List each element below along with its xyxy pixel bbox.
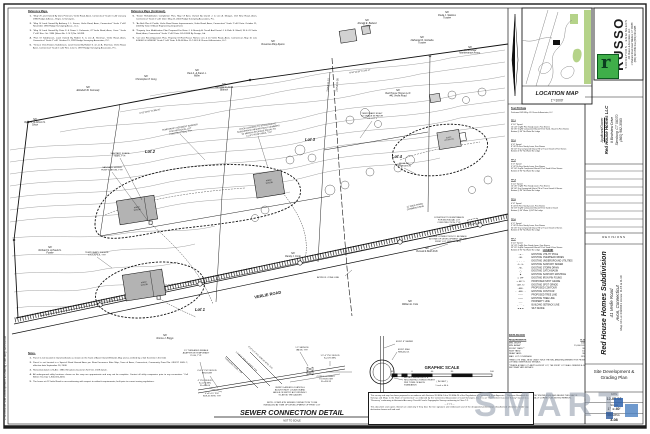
callout: TEMPORARY RIGHTTO GRADE IN FAVOROF LOT 3 — [361, 112, 383, 120]
sanitary-manhole — [398, 240, 402, 244]
scale-tick: 40 — [391, 371, 394, 373]
legend-item: - - - - EXISTING UNDERGROUND UTILITIES — [511, 260, 585, 262]
applicant-phone: (860) 982-3583 — [619, 98, 623, 162]
scale-tick: 160 — [490, 371, 494, 373]
valve-symbol — [307, 367, 313, 375]
detail-callout: 4" PVC SDR-35S=1.0% MIN.FL=455.00 — [198, 380, 214, 387]
legend-symbol: ~~~~ — [511, 297, 530, 299]
neighbor-label: N/FRonna J. Briggs — [156, 334, 174, 340]
reference-map-item: 6. "Sewer Rehabilitation Completion Plan… — [131, 15, 257, 21]
scale-tick: 40 — [431, 371, 434, 373]
note-item: 1. Parcel is not located in inland wetla… — [28, 357, 188, 360]
callout: ROOF LEADERS TO STOCKPILE TOSUBSURFACE I… — [236, 122, 281, 139]
margin-file-note: Z:\3-08\3-08 Site Development & Grading … — [3, 260, 7, 420]
detail-callout: 1.5" SERVICEVALVE, TYP. — [295, 347, 309, 351]
road-verlie — [12, 216, 508, 334]
site-marker — [553, 40, 560, 45]
sewer-detail-scale: NOT TO SCALE — [283, 420, 301, 423]
detail-callout: THREADED PLUG, TYP. — [224, 357, 243, 375]
neighbor-label: N/FRonald E. BedardTrustee — [358, 19, 378, 28]
legend-label: PROPOSED SPOT GRADE — [532, 280, 561, 282]
reference-maps-title: Reference Maps. — [28, 10, 126, 13]
neighbor-label: N/FRosanne Riley-Spano — [261, 40, 285, 46]
scale-units: ( IN FEET ) — [436, 381, 447, 383]
reference-maps-col2: Reference Maps (Continued). 6. "Sewer Re… — [131, 10, 257, 108]
testpit-entry: TP-1 0"-10" Topsoil 10"-34" Org/Br Fine … — [511, 115, 585, 133]
lot-label: Lot 3 — [305, 137, 316, 142]
street-label: VERLIE ROAD — [254, 289, 282, 299]
location-map-title: LOCATION MAP — [536, 91, 579, 97]
reference-maps-title-continued: Reference Maps (Continued). — [131, 10, 257, 13]
reference-map-item: 7. "As-Built Plan & Profile, Verlie Road… — [131, 22, 257, 28]
data-block-row: MAX. LOT COVERAGE 15% — [509, 355, 585, 358]
legend-label: SILT FENCE — [532, 308, 545, 310]
titleblock-row: DATE 12-05-08 — [585, 393, 643, 403]
testpit-entry: TP-4 0"-10" Topsoil 10"-36" Org/Br Fine … — [511, 174, 585, 192]
sewer-detail-title: SEWER CONNECTION DETAIL — [240, 408, 344, 417]
data-block-footnote: *REAR LOTS SHALL BE AT LEAST TWICE THE M… — [509, 359, 585, 363]
reference-map-item: 4. "Plan Of Subdivision, Land Owned By R… — [28, 36, 126, 42]
detail-callout: VERIFY LADDER LOCATION &ADJUST INLET LOC… — [273, 386, 307, 396]
applicant-block: Applicant/Owner Red House Homes LLC 8 Bi… — [600, 98, 623, 162]
neighbor-label: N/FNathaniel R. GiobattaTrustee — [411, 36, 435, 45]
legend-symbol: □ — [511, 270, 530, 272]
neighbor-building — [429, 93, 440, 102]
legend-symbol: - -458- - — [511, 291, 530, 293]
reference-maps-col1: Reference Maps. 1. "Map Of Land Owned By… — [28, 10, 126, 108]
detail-callout: INSTALL INSIDE DROP &RECONSTRUCT BRICK I… — [404, 376, 436, 386]
titleblock-row: SCALE 1" = 40' — [585, 403, 643, 413]
legend-symbol: --o-- — [511, 253, 530, 255]
legend-item: -S--S- EXISTING SANITARY SEWER — [511, 263, 585, 265]
callout: 12' WIDE PAVEDCOMMON DRIVE — [406, 202, 425, 211]
data-block-title: DATA BLOCK — [509, 334, 585, 337]
legend-label: PROPOSED TREE LINE — [532, 294, 557, 296]
scale-units: 1 inch = 40 ft. — [435, 384, 449, 387]
lot-label: Lot 1 — [195, 307, 206, 312]
callout: SANITARY SEWERPUMP STATION, TYP. — [101, 166, 123, 172]
disclaimer-paragraph-2: This document and copies thereof are val… — [369, 406, 530, 412]
neighbor-label: N/FWilliam E. Cole — [402, 300, 419, 306]
lot-label: Lot 4 — [392, 154, 403, 159]
neighbor-building — [339, 29, 357, 43]
callout: TEMPORARY SEDIMENT BARRIERFOR INDIVIDUAL… — [162, 123, 199, 137]
detail-callout: EXIST. 8" SEWER — [396, 341, 414, 343]
legend-symbol: ▪—▪—▪ — [511, 308, 530, 310]
detail-callout: 4"x4"x1.5" PVCSDR-35 WYE, TYP. — [203, 393, 222, 397]
disclaimer-paragraph-1: This survey and map has been prepared in… — [369, 393, 530, 403]
pump-station — [149, 221, 152, 224]
notes-block: Notes. 1. Parcel is not located in inlan… — [28, 352, 188, 424]
legend-symbol: ○ IPF — [511, 277, 530, 279]
note-item: 2. Parcel is not located in a Special Fl… — [28, 361, 188, 367]
legend-title: LEGEND — [511, 249, 585, 252]
bearing-label: N 64°12'30" E 242.17' — [349, 69, 371, 74]
testpit-entry: TP-2 0"-8" Topsoil 8"-30" Br Fine Sandy … — [511, 134, 585, 152]
legend-item: - -458- - EXISTING CONTOUR — [511, 291, 585, 293]
reference-map-item: 9. "Lot Line Reconfiguration Plan, Prope… — [131, 36, 257, 42]
reference-map-item: 8. "Property Line Modification Plan Prep… — [131, 29, 257, 35]
neighbor-label: N/FPaula J. StankusTrustee — [438, 11, 457, 20]
legend-block: LEGEND --o-- EXISTING UTILITY POLE -OH- … — [511, 249, 585, 333]
firm-logo-icon: r — [597, 54, 619, 79]
testpit-entry: TP-6 0"-9" Topsoil 9"-30" Br Fine Sandy … — [511, 213, 585, 231]
legend-label: EXISTING CONTOUR — [532, 291, 555, 293]
graphic-scale-title: GRAPHIC SCALE — [425, 365, 460, 370]
legend-item: + 457.5 PROPOSED SPOT GRADE — [511, 280, 585, 282]
location-map-scale: 1"=1000' — [551, 99, 564, 103]
callout: APPROX. ZONE LINE — [317, 276, 339, 279]
legend-symbol: -S--S- — [511, 264, 530, 266]
sanitary-manhole — [198, 282, 202, 286]
lot-label: Lot 2 — [145, 149, 156, 154]
survey-disclaimer-box: This survey and map has been prepared in… — [368, 392, 534, 425]
neighbor-label: N/FRussell & Beth Roth — [416, 247, 438, 253]
callout: CONSTRUCTION ENTRANCEFOR INDIVIDUAL LOTC… — [434, 216, 465, 224]
reference-map-item: 2. "Map Of Land Owned By Anthony J. L. F… — [28, 22, 126, 28]
notes-title: Notes. — [28, 352, 188, 355]
legend-item: ^^^^ PROPOSED TREE LINE — [511, 294, 585, 296]
legend-symbol: -OH- — [511, 257, 530, 259]
zone-label: ZONE R-15 — [326, 77, 331, 91]
legend-symbol: -SD- — [511, 267, 530, 269]
callout: TEMPORARY TOPSOILSTOCKPILE, TYP. — [85, 251, 110, 257]
data-block-footnote: **WHERE A REAR LOT ABUTS A FRONT LOT, TH… — [509, 364, 585, 368]
legend-item: ▪—▪—▪ SILT FENCE — [511, 308, 585, 310]
detail-note: NOTE: COMPLETE SEWER CONNECTION TO BEINS… — [264, 402, 321, 407]
zone-label: ZONE R-30 — [335, 77, 340, 91]
detail-callout: CORE & CONNECTTO EXIST. MHFL=450.35 — [317, 376, 337, 383]
reference-map-item: 5. "Terrace View Estates Subdivision, La… — [28, 44, 126, 50]
data-block: DATA BLOCK REQUIREMENTS R-15 MIN. WIDTH … — [509, 334, 585, 392]
note-item: 3. Horizontal datum is N.A.D. 1983. Elev… — [28, 368, 188, 371]
sanitary-manhole — [298, 261, 302, 265]
scale-tick: 80 — [451, 371, 454, 373]
legend-label: EXISTING IRON PIN FOUND — [532, 277, 562, 279]
silt-fence-hatch — [15, 216, 508, 320]
callout: SANITARY FORCEMAIN, TYP. — [111, 152, 131, 158]
reference-map-item: 1. "Map Of Land Owned By Doris Petersen,… — [28, 15, 126, 21]
neighbor-label: N/FRandy J. Forte — [285, 252, 301, 258]
test-pit-title: Test Pit Data — [511, 107, 585, 110]
legend-symbol: ◉ — [511, 274, 530, 276]
titleblock-row: DRAWING 3-08 — [585, 413, 643, 423]
legend-symbol: (457.5) — [511, 284, 530, 286]
legend-symbol: - - - - — [511, 260, 530, 262]
revisions-label: REVISIONS — [585, 235, 643, 239]
note-item: 4. All underground utility locations sho… — [28, 373, 188, 379]
legend-symbol: + 457.5 — [511, 280, 530, 282]
project-title: Red House Homes Subdivision — [601, 245, 609, 361]
legend-symbol: ——— — [511, 301, 530, 303]
neighbor-label: N/FRichard S. & Paula S.Fowler — [38, 246, 61, 255]
bearing-label: N 62°40'00" E 385.00' — [139, 109, 161, 115]
reference-map-item: 3. "Map Of Land Owned By Peter F. & Dian… — [28, 29, 126, 35]
detail-callout: 1.5"-4" PVC SDR-35S=2.0% MIN. — [320, 355, 340, 359]
legend-symbol: —458— — [511, 287, 530, 289]
pump-station — [157, 296, 160, 299]
project-title-block: Red House Homes Subdivision 41 Verlie Ro… — [601, 245, 624, 361]
owner-label: N/FRed House Homes LLC#41 Verlie Road — [385, 89, 411, 98]
legend-label: EXISTING UNDERGROUND UTILITIES — [532, 260, 573, 262]
callout: EDGE OFVEGETATION — [397, 163, 411, 168]
testpit-entry: TP-3 0"-9" Topsoil 9"-32" Br Fine Sandy … — [511, 154, 585, 172]
note-item: 5. The house at 41 Verlie Road is non-co… — [28, 380, 188, 383]
legend-symbol: — ·· — — [511, 304, 530, 306]
legend-label: EXISTING SANITARY SEWER — [532, 263, 564, 265]
test-pit-subtitle: Performed 10/1/08 by J.R. Russo & Associ… — [511, 112, 585, 114]
legend-item: ○ IPF EXISTING IRON PIN FOUND — [511, 277, 585, 279]
legend-symbol: ^^^^ — [511, 294, 530, 296]
legend-item: — ·· — BUILDING SETBACK LINE — [511, 304, 585, 306]
project-maplot: Map 10 Lot 4430041 Zones: R-15 & R-30 — [620, 245, 624, 361]
sheet-title: Site Development & Grading Plan — [585, 369, 643, 380]
callout-leaders — [97, 121, 472, 268]
test-pit-data: Test Pit Data Performed 10/1/08 by J.R. … — [511, 107, 585, 247]
scale-tick: 0 — [411, 371, 413, 373]
detail-callout: EXIST. SMHRIM=462.21 — [398, 349, 410, 353]
sanitary-manhole — [478, 223, 482, 227]
detail-callout: 4"x1.5" PVC SDR-35REDUCER — [197, 370, 217, 374]
force-mains — [151, 193, 306, 317]
callout: SEWER CONNECTION TO BE MADEAT TIME OF DE… — [429, 235, 467, 243]
location-map-box — [522, 8, 592, 104]
tree-symbols — [252, 88, 493, 222]
testpit-entry: TP-5 0"-8" Topsoil 8"-34" Br Fine Sandy … — [511, 194, 585, 212]
firm-line3: (860) 623-0569 Fax (860) 623-2485 — [635, 11, 638, 77]
plan-sheet: { "margin_note": "Z:\\3-08\\3-08 Site De… — [0, 0, 650, 434]
titleblock-rows: DATE 12-05-08 SCALE 1" = 40' DRAWING 3-0… — [585, 393, 643, 424]
